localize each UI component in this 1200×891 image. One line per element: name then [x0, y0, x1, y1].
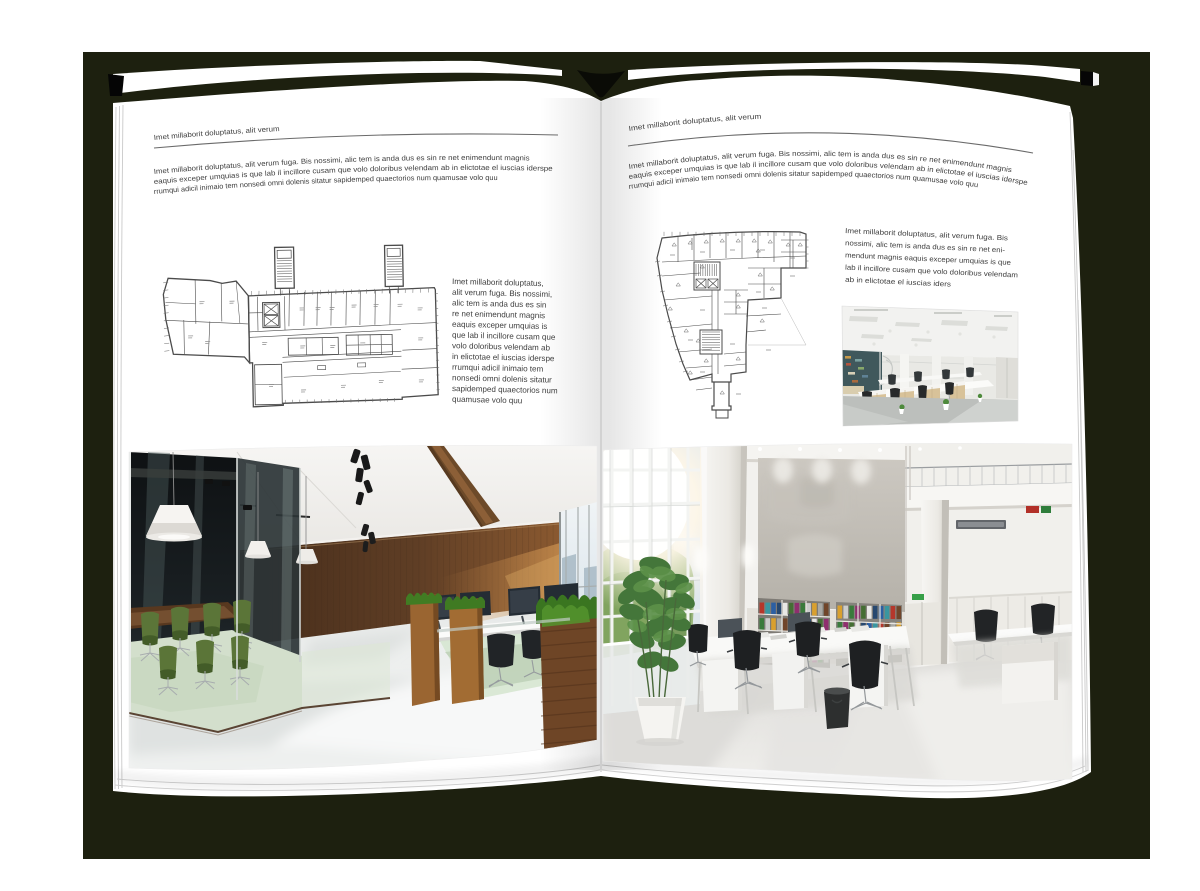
- svg-text:quamusae volo quu: quamusae volo quu: [452, 395, 522, 406]
